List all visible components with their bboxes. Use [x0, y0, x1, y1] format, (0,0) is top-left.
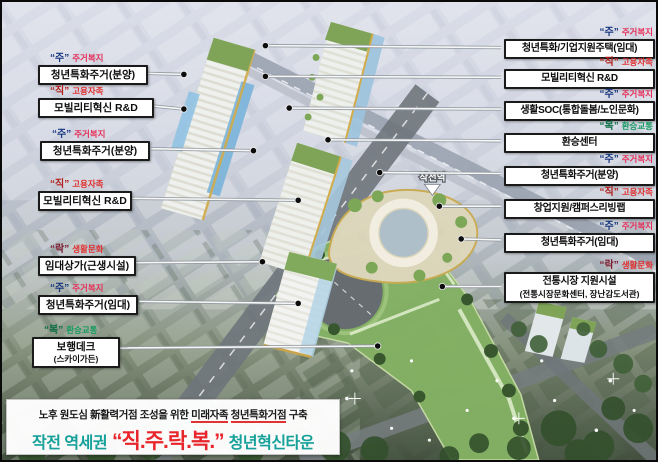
category-label: 생활문화: [622, 259, 653, 271]
category-label: 환승교통: [66, 324, 97, 336]
podium-building: [329, 190, 477, 283]
category-label: 주거복지: [72, 282, 103, 294]
category-label: 고용자족: [622, 186, 653, 198]
callout-box: 청년특화주거(분양): [504, 166, 655, 186]
category-char: “직”: [50, 179, 69, 191]
callout-housing-sale-1: “주”주거복지 청년특화주거(분양): [38, 52, 148, 85]
callout-box: 임대상가(근생시설): [38, 256, 136, 276]
banner-title: 작전 역세권“직.주.락.복.”청년혁신타운: [7, 425, 339, 455]
category-char: “직”: [50, 86, 69, 98]
category-label: 주거복지: [74, 128, 105, 140]
category-char: “락”: [50, 244, 69, 256]
callout-box: 모빌리티혁신 R&D: [38, 98, 154, 118]
category-char: “복”: [600, 121, 619, 133]
category-tag: “락”생활문화: [504, 259, 655, 271]
callout-box: 청년특화주거(분양): [38, 65, 148, 85]
category-char: “복”: [44, 325, 63, 337]
callout-housing-sale-3: “주”주거복지 청년특화주거(분양): [504, 153, 655, 186]
promo-poster: 작전역: [0, 0, 658, 462]
category-char: “직”: [600, 57, 619, 69]
banner-title-suffix: 청년혁신타운: [229, 429, 314, 453]
callout-startup-livinglab: “직”고용자족 창업지원/캠퍼스리빙랩: [504, 186, 655, 219]
callout-sky-garden-deck: “복”환승교통 보행데크(스카이가든): [32, 324, 120, 368]
category-tag: “직”고용자족: [504, 186, 655, 198]
banner-title-quote: “직.주.락.복.”: [112, 425, 224, 455]
category-label: 고용자족: [622, 56, 653, 68]
category-char: “주”: [52, 129, 71, 141]
callout-box: 보행데크(스카이가든): [32, 337, 120, 368]
bottom-banner: 노후 원도심 新활력거점 조성을 위한 미래자족 청년특화거점 구축 작전 역세…: [6, 399, 340, 455]
callout-box: 청년특화주거(임대): [38, 295, 138, 315]
callout-housing-rent-2: “주”주거복지 청년특화주거(임대): [504, 220, 655, 253]
category-tag: “직”고용자족: [38, 85, 154, 97]
callout-box: 생활SOC(통합돌봄/노인문화): [504, 101, 655, 121]
callout-housing-sale-2: “주”주거복지 청년특화주거(분양): [40, 128, 150, 161]
category-tag: “복”환승교통: [32, 324, 120, 336]
callout-youth-biz-housing: “주”주거복지 청년특화/기업지원주택(임대): [504, 26, 655, 59]
callout-box: 청년특화주거(임대): [504, 233, 655, 253]
callout-box: 모빌리티혁신 R&D: [38, 191, 132, 211]
underlined-keyword: 청년특화거점: [231, 409, 287, 423]
category-char: “주”: [600, 154, 619, 166]
category-char: “주”: [600, 27, 619, 39]
category-label: 환승교통: [622, 120, 653, 132]
callout-box: 환승센터: [504, 133, 655, 153]
category-label: 생활문화: [72, 243, 103, 255]
category-label: 주거복지: [622, 153, 653, 165]
category-char: “락”: [600, 260, 619, 272]
category-label: 주거복지: [72, 52, 103, 64]
category-tag: “직”고용자족: [504, 56, 655, 68]
category-tag: “주”주거복지: [38, 282, 138, 294]
category-char: “주”: [50, 283, 69, 295]
callout-mobility-rnd-3: “직”고용자족 모빌리티혁신 R&D: [504, 56, 655, 89]
category-tag: “주”주거복지: [40, 128, 150, 140]
category-tag: “락”생활문화: [38, 243, 136, 255]
callout-mobility-rnd-2: “직”고용자족 모빌리티혁신 R&D: [38, 178, 132, 211]
callout-box: 청년특화주거(분양): [40, 141, 150, 161]
category-char: “주”: [50, 53, 69, 65]
callout-transfer-center: “복”환승교통 환승센터: [504, 120, 655, 153]
callout-housing-rent-1: “주”주거복지 청년특화주거(임대): [38, 282, 138, 315]
callout-mobility-rnd-1: “직”고용자족 모빌리티혁신 R&D: [38, 85, 154, 118]
category-label: 주거복지: [622, 26, 653, 38]
category-label: 주거복지: [622, 88, 653, 100]
category-tag: “주”주거복지: [504, 153, 655, 165]
category-tag: “주”주거복지: [504, 26, 655, 38]
category-tag: “주”주거복지: [504, 88, 655, 100]
callout-traditional-market: “락”생활문화 전통시장 지원시설(전통시장문화센터, 장난감도서관): [504, 259, 655, 303]
category-tag: “직”고용자족: [38, 178, 132, 190]
category-tag: “복”환승교통: [504, 120, 655, 132]
category-label: 고용자족: [72, 178, 103, 190]
callout-box: 전통시장 지원시설(전통시장문화센터, 장난감도서관): [504, 272, 655, 303]
category-label: 주거복지: [622, 220, 653, 232]
banner-subtitle: 노후 원도심 新활력거점 조성을 위한 미래자족 청년특화거점 구축: [7, 407, 339, 422]
banner-title-prefix: 작전 역세권: [32, 429, 107, 453]
category-tag: “주”주거복지: [38, 52, 148, 64]
category-tag: “주”주거복지: [504, 220, 655, 232]
underlined-keyword: 미래자족: [191, 409, 228, 423]
callout-box: 창업지원/캠퍼스리빙랩: [504, 199, 655, 219]
callout-rental-shops: “락”생활문화 임대상가(근생시설): [38, 243, 136, 276]
callout-box: 모빌리티혁신 R&D: [504, 69, 655, 89]
category-char: “직”: [600, 187, 619, 199]
category-char: “주”: [600, 89, 619, 101]
callout-living-soc: “주”주거복지 생활SOC(통합돌봄/노인문화): [504, 88, 655, 121]
category-label: 고용자족: [72, 85, 103, 97]
category-char: “주”: [600, 221, 619, 233]
